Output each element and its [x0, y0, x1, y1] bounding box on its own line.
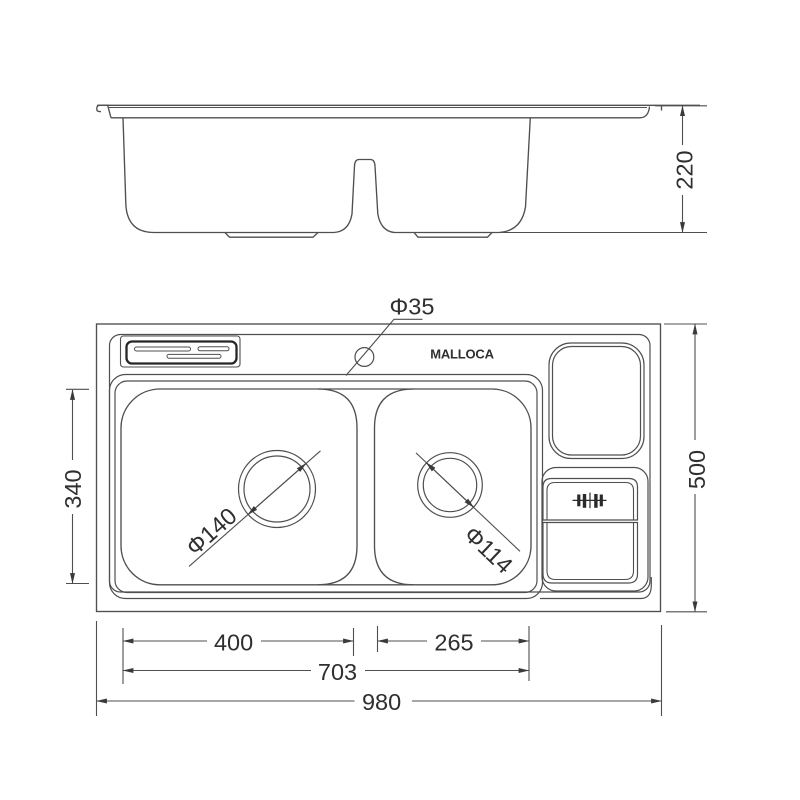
svg-text:400: 400	[214, 630, 253, 656]
svg-text:Φ140: Φ140	[181, 503, 242, 561]
svg-text:340: 340	[60, 469, 86, 508]
svg-text:Φ114: Φ114	[459, 521, 518, 579]
svg-text:220: 220	[672, 150, 698, 189]
svg-text:Φ35: Φ35	[390, 294, 435, 320]
svg-text:980: 980	[362, 689, 401, 715]
svg-text:MALLOCA: MALLOCA	[430, 347, 494, 362]
svg-text:703: 703	[318, 659, 357, 685]
svg-text:500: 500	[684, 450, 710, 489]
svg-text:265: 265	[434, 630, 473, 656]
